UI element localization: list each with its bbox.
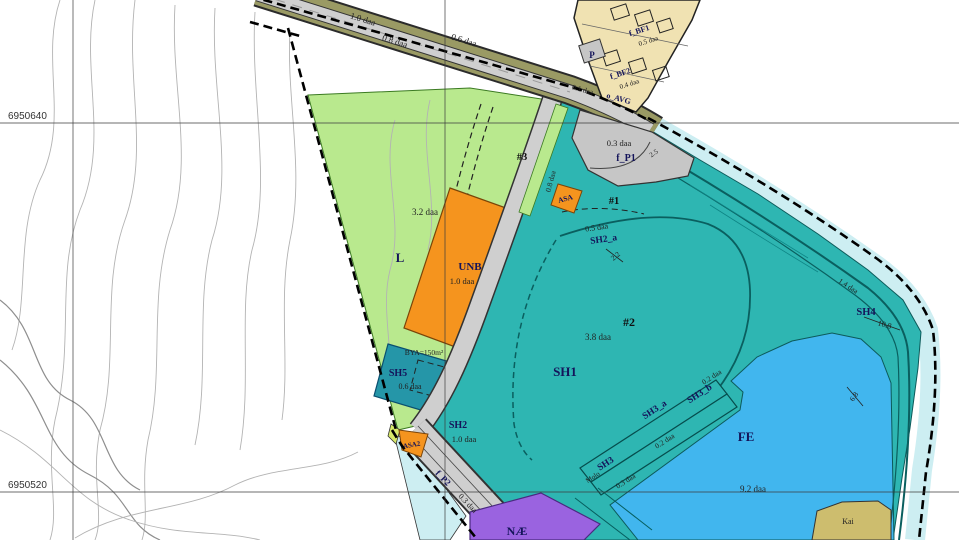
- marker-2: #2: [623, 315, 635, 329]
- zone-sh2-area: 1.0 daa: [452, 434, 477, 444]
- zoning-map: 6950640 6950520 1.0 daa 0.8 daa 0.6 daa …: [0, 0, 959, 540]
- zone-l-area: 3.2 daa: [412, 207, 438, 217]
- zoning-map-canvas: 6950640 6950520 1.0 daa 0.8 daa 0.6 daa …: [0, 0, 959, 540]
- zone-sh5-area: 0.6 daa: [398, 382, 422, 391]
- zone-p-label: P: [589, 50, 595, 60]
- marker-2-area: 3.8 daa: [585, 332, 611, 342]
- zone-unb-area: 1.0 daa: [450, 276, 475, 286]
- zone-fp1-area: 0.3 daa: [607, 138, 632, 148]
- zone-sh4-label: SH4: [856, 307, 876, 318]
- zone-fe-label: FE: [738, 429, 755, 444]
- zone-nae-label: NÆ: [507, 524, 528, 538]
- grid-coordinate-label: 6950640: [8, 111, 47, 122]
- zone-sh5-bya: BYA=150m²: [405, 348, 444, 357]
- zone-kai-label: Kai: [842, 517, 854, 526]
- grid-coordinate-label: 6950520: [8, 480, 47, 491]
- zone-sh5-label: SH5: [389, 368, 407, 379]
- zone-sh1-label: SH1: [553, 364, 577, 379]
- marker-1: #1: [609, 196, 620, 207]
- zone-fp1-label: f_P1: [616, 153, 635, 164]
- zone-sh2-label: SH2: [449, 420, 467, 431]
- marker-3: #3: [517, 152, 528, 163]
- zone-fe-area: 9.2 daa: [740, 484, 766, 494]
- zone-l-label: L: [396, 250, 405, 265]
- zone-unb-label: UNB: [458, 261, 482, 273]
